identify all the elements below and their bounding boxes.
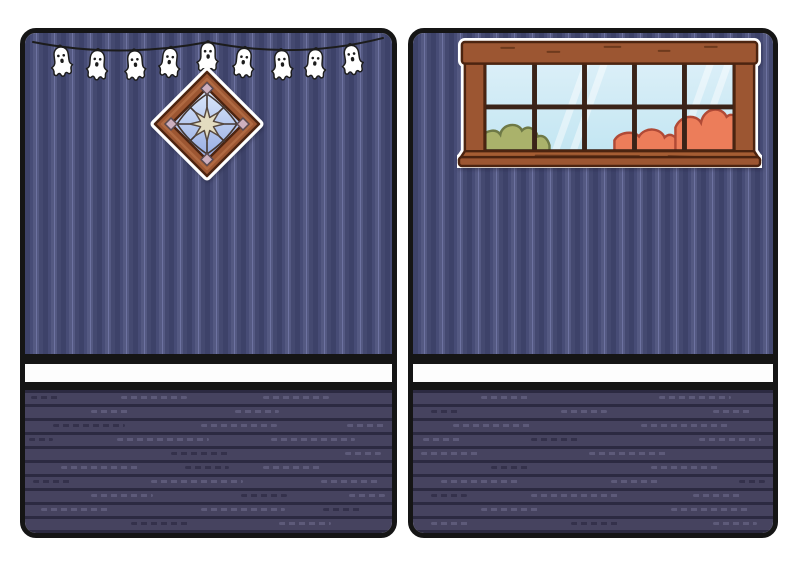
plank-grain-dashes — [235, 410, 279, 413]
plank-grain-dashes — [91, 410, 131, 413]
plank-grain-dashes — [431, 522, 471, 525]
ghost — [49, 46, 74, 78]
plank-grain-dashes — [561, 410, 607, 413]
plank-grain-dashes — [279, 522, 331, 525]
plank-grain-dashes — [61, 466, 141, 469]
ghost — [123, 50, 147, 81]
plank-grain-dashes — [201, 424, 277, 427]
plank-grain-dashes — [323, 508, 363, 511]
ghost — [304, 49, 327, 80]
plank-grain-dashes — [241, 494, 287, 497]
plank-grain-dashes — [641, 424, 731, 427]
wallpaper-right — [413, 33, 773, 354]
plank-grain-dashes — [185, 466, 229, 469]
plank-grain-dashes — [739, 480, 765, 483]
plank-grain-dashes — [263, 466, 323, 469]
plank-grain-dashes — [121, 396, 187, 399]
plank-grain-dashes — [151, 480, 243, 483]
plank-grain-dashes — [671, 508, 751, 511]
plank-grain-dashes — [491, 466, 531, 469]
plank-grain-dashes — [41, 508, 111, 511]
plank-grain-dashes — [431, 410, 461, 413]
floor-right — [413, 390, 773, 533]
plank-grain-dashes — [713, 410, 753, 413]
plank-grain-dashes — [117, 438, 209, 441]
plank-grain-dashes — [531, 438, 581, 441]
plank-grain-dashes — [263, 396, 329, 399]
plank-grain-dashes — [31, 396, 59, 399]
plank-grain-dashes — [699, 438, 761, 441]
window-sill-board — [459, 157, 760, 166]
room-builder-scene — [0, 0, 800, 566]
ghost — [270, 50, 294, 81]
wallpaper-left — [25, 33, 392, 354]
plank-grain-dashes — [481, 396, 531, 399]
plank-grain-dashes — [571, 522, 621, 525]
plank-grain-dashes — [693, 494, 743, 497]
plank-grain-dashes — [611, 480, 661, 483]
window-jamb-left — [465, 63, 485, 154]
plank-grain-dashes — [531, 494, 621, 497]
plank-grain-dashes — [171, 452, 231, 455]
plank-grain-dashes — [345, 452, 381, 455]
plank-grain-dashes — [29, 438, 53, 441]
plank-grain-dashes — [453, 424, 533, 427]
plank-grain-dashes — [321, 480, 381, 483]
plank-grain-dashes — [271, 438, 355, 441]
ghost — [86, 50, 109, 81]
room-panel-left — [20, 28, 397, 538]
plank-grain-dashes — [131, 522, 191, 525]
plank-grain-dashes — [431, 494, 467, 497]
plank-grain-dashes — [349, 494, 385, 497]
baseboard-right — [413, 354, 773, 390]
plank-grain-dashes — [53, 424, 125, 427]
window-header — [462, 42, 757, 64]
wide-window-sticker[interactable] — [457, 37, 762, 168]
plank-grain-dashes — [347, 424, 387, 427]
plank-grain-dashes — [659, 396, 731, 399]
window-jamb-right — [734, 63, 754, 154]
plank-grain-dashes — [33, 480, 73, 483]
plank-grain-dashes — [201, 508, 285, 511]
ghost — [339, 44, 365, 76]
plank-grain-dashes — [441, 480, 521, 483]
floor-left — [25, 390, 392, 533]
plank-grain-dashes — [651, 466, 721, 469]
baseboard-left — [25, 354, 392, 390]
plank-grain-dashes — [713, 522, 757, 525]
star-pane — [190, 107, 224, 141]
plank-grain-dashes — [423, 438, 463, 441]
diamond-window-sticker[interactable] — [147, 64, 267, 184]
plank-grain-dashes — [421, 452, 481, 455]
plank-grain-dashes — [589, 452, 669, 455]
plank-grain-dashes — [481, 508, 541, 511]
room-panel-right — [408, 28, 778, 538]
plank-grain-dashes — [91, 494, 153, 497]
